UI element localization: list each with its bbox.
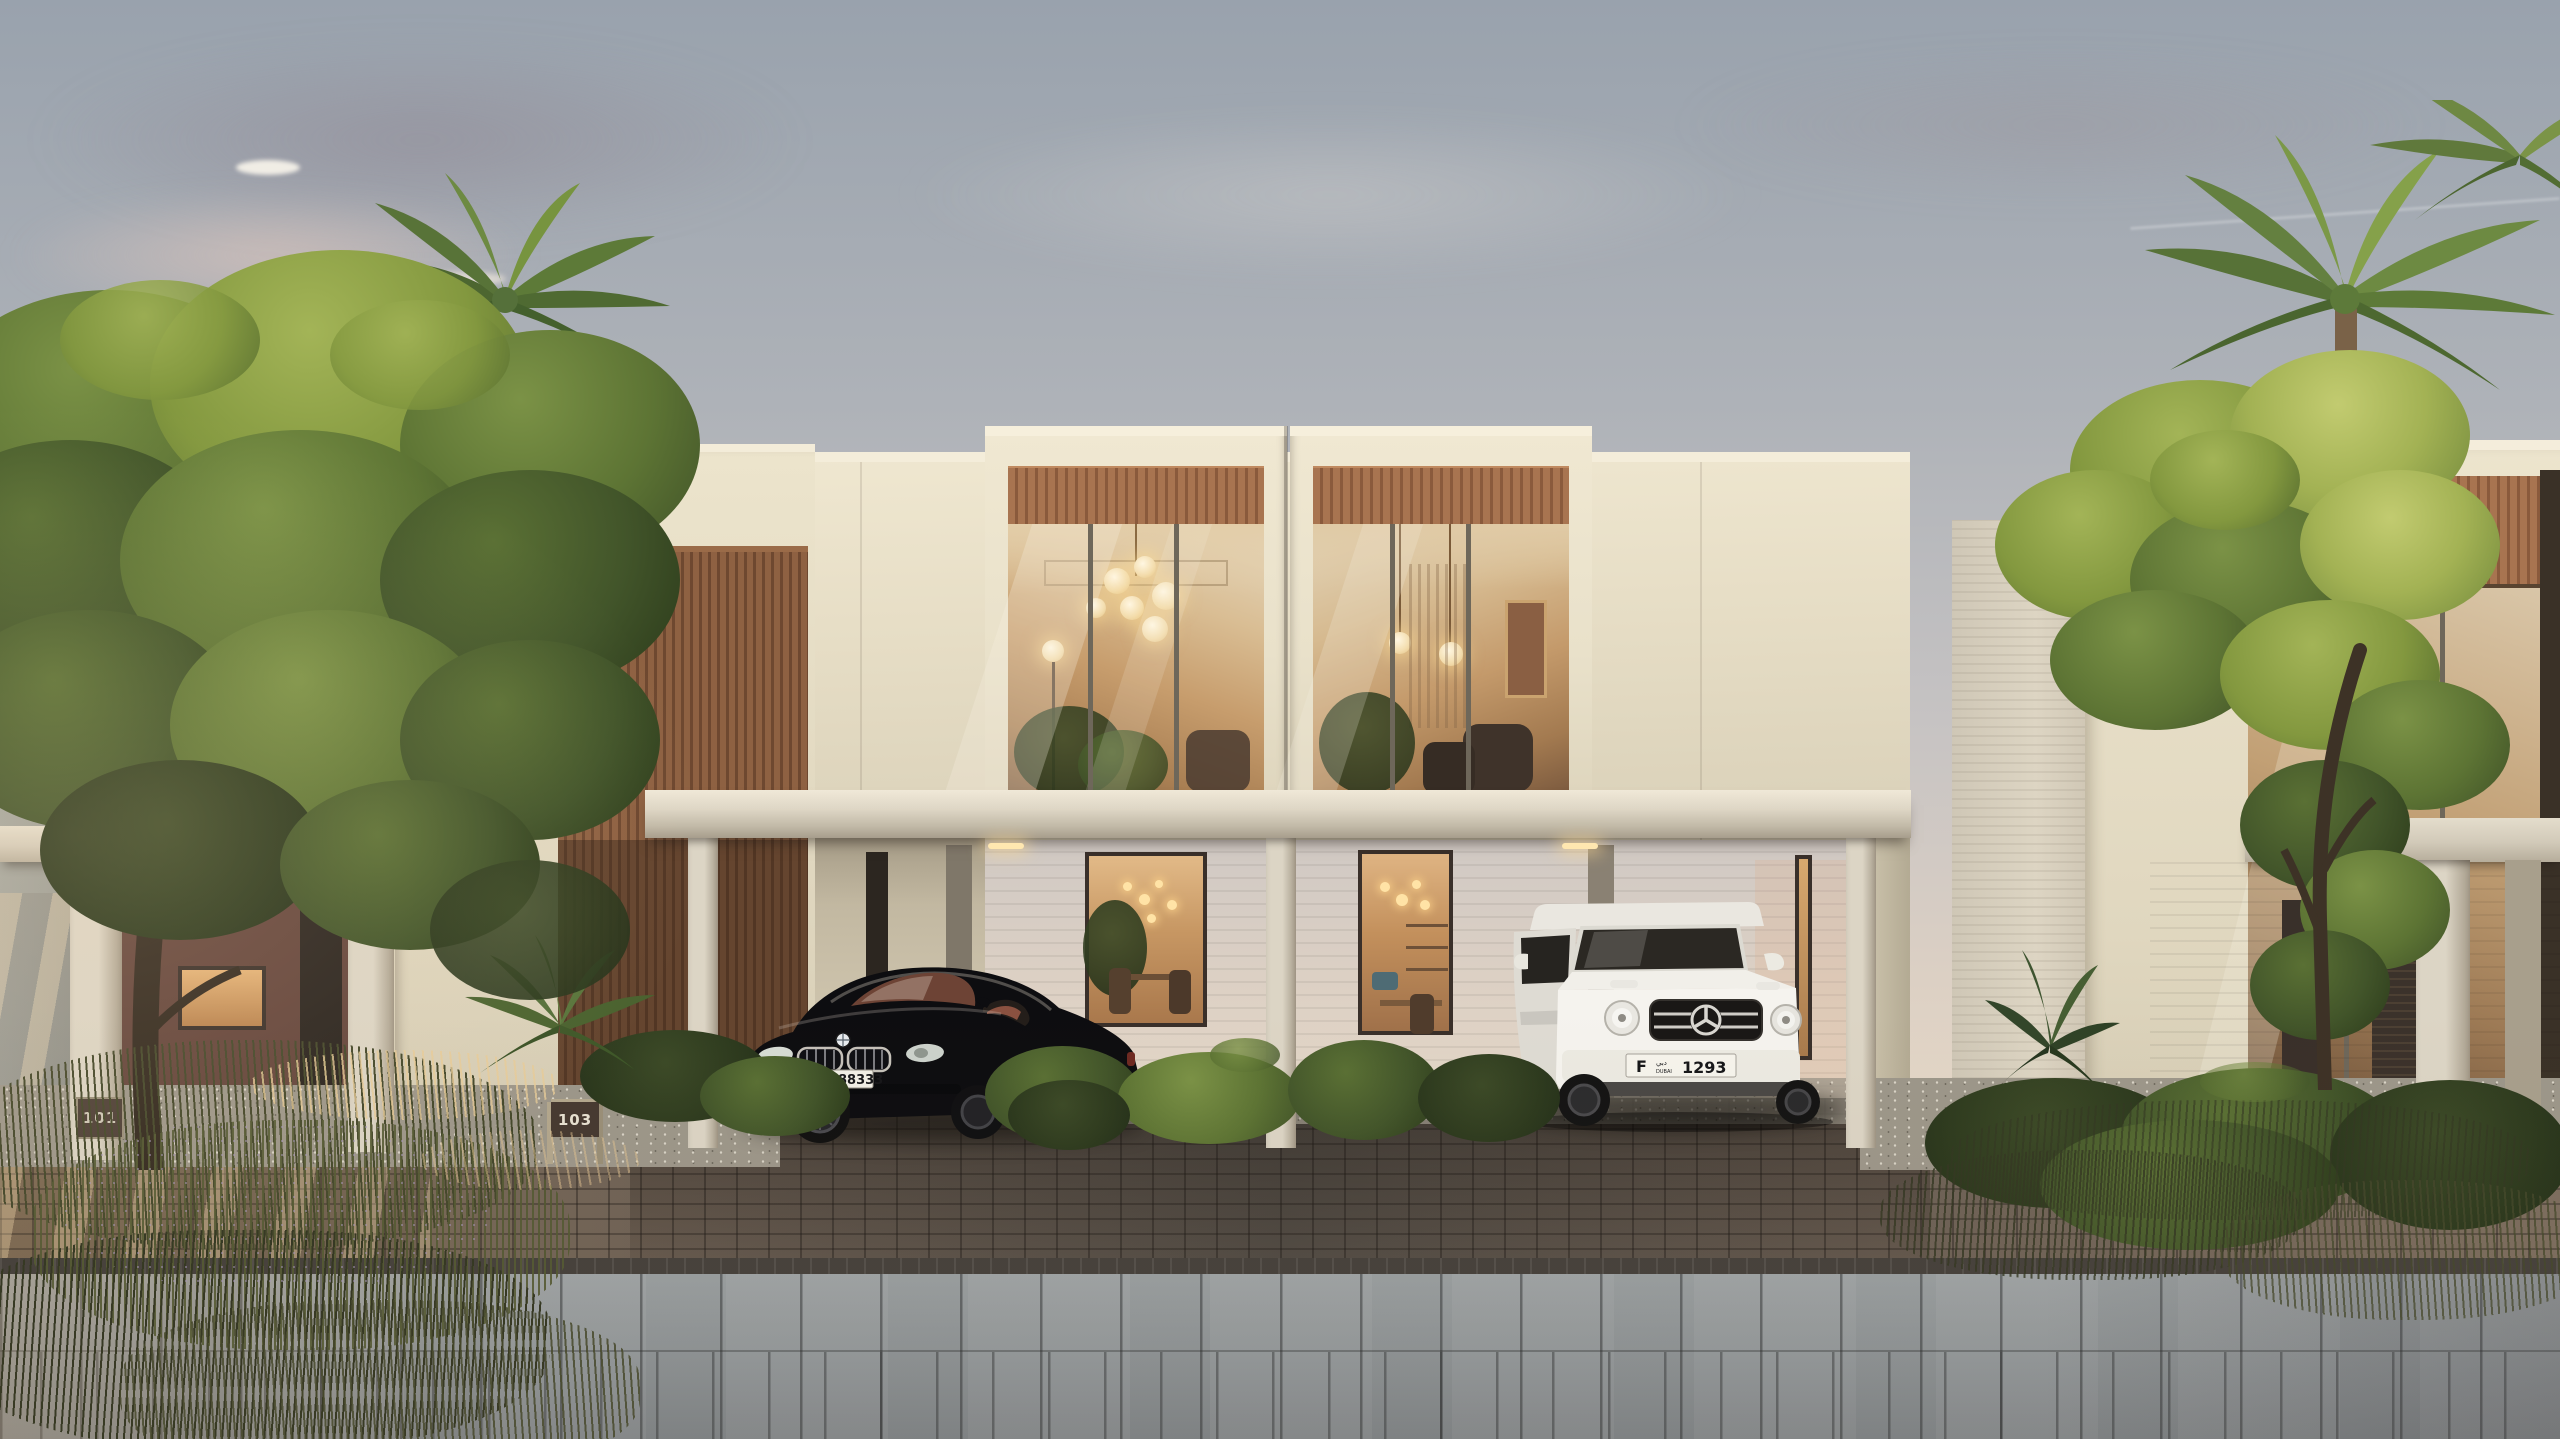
canopy-column [1846, 838, 1876, 1148]
shrub [1288, 1040, 1440, 1140]
svg-text:F: F [1636, 1057, 1647, 1076]
timber-slat-band [1313, 466, 1569, 527]
pendant-light [1167, 900, 1177, 910]
pendant-light [1147, 914, 1156, 923]
window-tower-right [1290, 426, 1592, 804]
grass-clump [2220, 1180, 2560, 1320]
interior-chair [1186, 730, 1250, 792]
pendant-light [1123, 882, 1132, 891]
bmw-roundel-icon [836, 1033, 850, 1047]
foliage-blob [2300, 470, 2500, 620]
headlight-left [1605, 1001, 1639, 1035]
svg-text:DUBAI: DUBAI [1656, 1069, 1672, 1075]
lavender-flowers [60, 1120, 490, 1290]
timber-slat-band [1008, 466, 1264, 527]
facade-joint [860, 462, 862, 840]
pendant-light [1380, 882, 1390, 892]
cloud [900, 110, 1760, 280]
foliage-blob [430, 860, 630, 1000]
shelving [1406, 968, 1448, 971]
upper-window-glass [1008, 524, 1264, 800]
pendant-light [1396, 894, 1408, 906]
dining-chair [1410, 994, 1434, 1034]
foliage-highlight [60, 280, 260, 400]
suv-side-window [1521, 935, 1570, 984]
shelving [1406, 924, 1448, 927]
chandelier-globe [1104, 568, 1130, 594]
foliage-blob [40, 760, 320, 940]
fender-signal [1610, 980, 1638, 988]
window-tower-left [985, 426, 1287, 804]
facade-joint [1700, 462, 1702, 840]
wheel-front-left [1558, 1074, 1610, 1126]
window-mullion [1174, 524, 1179, 796]
seat-cushion [1372, 972, 1398, 990]
pendant-light [1420, 900, 1430, 910]
shrub [1418, 1054, 1560, 1142]
license-plate-front: F دبي DUBAI 1293 [1626, 1054, 1736, 1077]
street-scene: C دبي DUBAI 88333 [0, 0, 2560, 1439]
dining-window-right [1358, 850, 1453, 1035]
party-wall-joint [1284, 426, 1288, 804]
wall-artwork [1505, 600, 1547, 698]
wheel-front-right [1776, 1080, 1820, 1124]
taillight [1127, 1052, 1135, 1066]
pendant-light [1139, 894, 1150, 905]
slat-partition [1409, 564, 1467, 728]
carport-canopy-main [645, 790, 1911, 838]
headlight-right [1771, 1005, 1801, 1035]
mirror [1764, 953, 1784, 970]
shrub [1008, 1080, 1130, 1150]
window-mullion [1390, 524, 1395, 796]
backlit-seedheads [420, 1130, 640, 1190]
fender-signal [1756, 982, 1780, 990]
canopy-recessed-light [988, 843, 1024, 849]
tree-trunk [2270, 620, 2390, 1090]
foliage-highlight [330, 300, 510, 410]
parapet-fascia [1290, 426, 1592, 436]
window-mullion [1088, 524, 1093, 796]
grass-clump [120, 1300, 640, 1439]
parapet-fascia [985, 426, 1287, 436]
chandelier-globe [1134, 556, 1156, 578]
svg-text:1293: 1293 [1682, 1058, 1727, 1077]
dining-chair [1169, 970, 1191, 1014]
chandelier-globe [1120, 596, 1144, 620]
svg-text:دبي: دبي [1656, 1059, 1667, 1067]
window-mullion [1466, 524, 1471, 796]
canopy-recessed-light [1562, 843, 1598, 849]
shrub-highlight [1210, 1038, 1280, 1072]
windshield-reflection [1584, 930, 1648, 968]
pendant-light [1155, 880, 1163, 888]
backlit-seedheads [250, 1050, 560, 1120]
shelving [1406, 946, 1448, 949]
foliage-blob [2150, 430, 2300, 530]
shrub [1118, 1052, 1300, 1144]
shrub [700, 1056, 850, 1136]
pendant-light [1412, 880, 1421, 889]
grille [1650, 1000, 1762, 1040]
upper-window-glass [1313, 524, 1569, 800]
